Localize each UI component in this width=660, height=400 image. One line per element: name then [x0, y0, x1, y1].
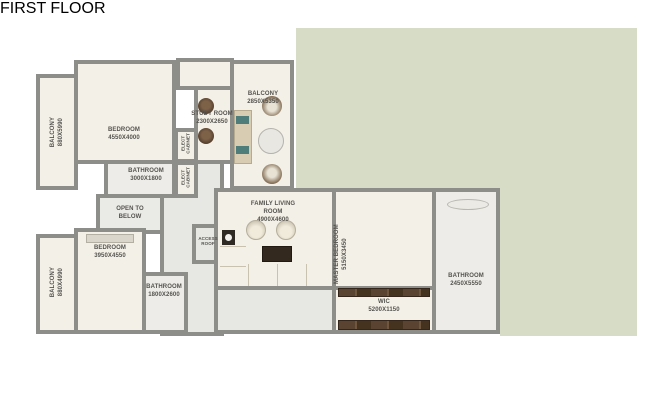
label-study: STUDY ROOM 2300X2650	[189, 110, 235, 126]
label-master-bathroom: BATHROOM 2450X5550	[438, 272, 494, 288]
chair	[198, 128, 214, 144]
bed-headboard	[354, 208, 412, 216]
bidet	[481, 248, 494, 261]
label-master-bedroom: MASTER BEDROOM 5150X3450	[333, 219, 349, 289]
window	[246, 58, 288, 64]
window	[497, 214, 503, 264]
window	[346, 331, 422, 337]
pillow	[236, 146, 249, 154]
property-wall-top	[12, 30, 296, 33]
pillow	[236, 116, 249, 124]
bed-bench	[82, 313, 140, 322]
label-elect-cabinet-1: ELECT CABINET	[181, 128, 192, 158]
coffee-table	[262, 246, 292, 262]
label-elect-cabinet-2: ELECT CABINET	[181, 162, 192, 192]
tv-console	[324, 234, 333, 272]
window	[88, 58, 146, 64]
bed-headboard-tufted	[84, 264, 138, 274]
window	[86, 331, 138, 337]
toilet	[170, 310, 181, 324]
pillow	[118, 75, 141, 82]
label-family-living: FAMILY LIVING ROOM 4900X4600	[243, 200, 303, 224]
label-open-to-below: OPEN TO BELOW	[108, 205, 152, 221]
bed-bench	[86, 111, 146, 121]
wardrobe	[338, 288, 430, 297]
sink	[439, 248, 451, 257]
bathtub-basin	[447, 199, 489, 210]
door-arc	[216, 158, 232, 174]
window	[230, 331, 302, 337]
rattan-chair	[262, 164, 282, 184]
window	[34, 90, 40, 134]
property-wall-left	[12, 30, 15, 336]
shower	[468, 300, 496, 330]
shower	[146, 302, 164, 328]
door-arc	[150, 268, 164, 282]
staircase	[186, 288, 260, 332]
pillow	[87, 277, 110, 284]
bed-bench	[352, 260, 414, 270]
label-wic: WIC 5200X1150	[354, 298, 414, 314]
bed-headboard	[88, 64, 144, 72]
label-bedroom-1: BEDROOM 4550X4000	[94, 126, 154, 142]
floor-title: FIRST FLOOR	[0, 0, 660, 18]
label-balcony-top-left: BALCONY 880X5990	[49, 102, 65, 162]
window	[34, 248, 40, 304]
pillow	[113, 277, 135, 284]
fireplace-fan	[225, 234, 232, 241]
label-bathroom-1: BATHROOM 3000X1800	[118, 167, 174, 183]
round-table	[258, 128, 284, 154]
wardrobe	[338, 320, 430, 330]
sink	[439, 226, 451, 235]
label-balcony-top: BALCONY 2850X5350	[233, 90, 293, 106]
garden-area-right	[500, 188, 637, 336]
door-arc	[336, 194, 356, 214]
label-bedroom-2: BEDROOM 3950X4550	[80, 244, 140, 260]
pillow	[91, 75, 115, 82]
door-arc	[216, 262, 236, 282]
window	[34, 142, 40, 182]
dresser	[358, 192, 410, 201]
garden-door	[230, 188, 290, 195]
floor-plan: BALCONY 880X5990 BEDROOM 4550X4000 BATHR…	[0, 0, 660, 400]
toilet	[481, 226, 494, 239]
garden-area-top	[296, 28, 637, 190]
door-arc	[146, 146, 164, 164]
label-balcony-bottom-left: BALCONY 880X4990	[49, 252, 65, 312]
label-access-roof: ACCESS ROOF	[193, 236, 223, 247]
door-arc	[434, 292, 452, 310]
pillow	[358, 219, 382, 227]
label-bathroom-2: BATHROOM 1800X2600	[140, 283, 188, 299]
pillow	[386, 219, 409, 227]
